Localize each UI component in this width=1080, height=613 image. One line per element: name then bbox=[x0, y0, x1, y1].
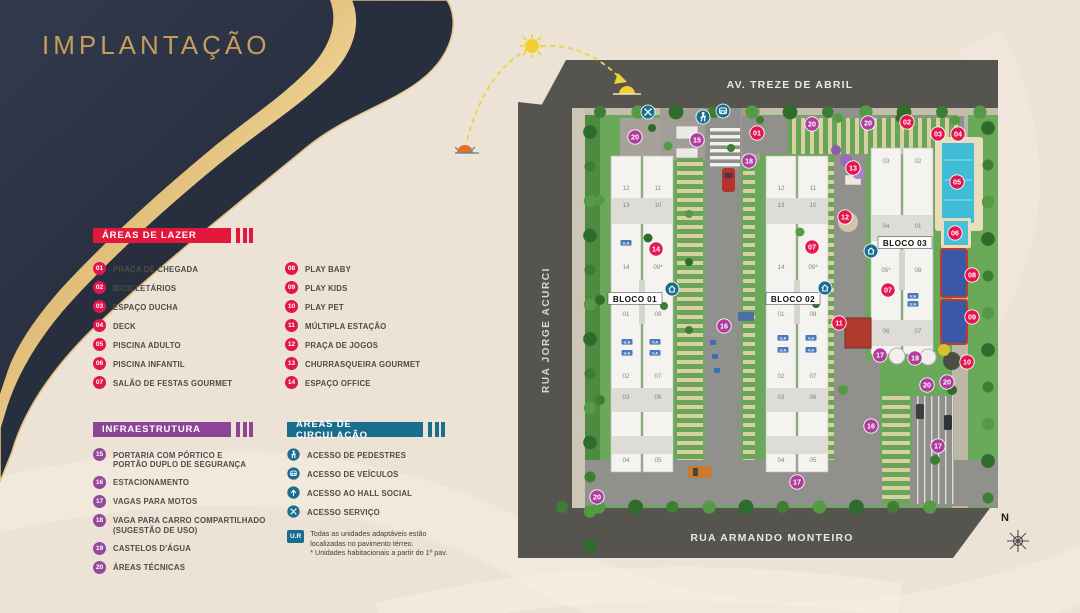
legend-infra-items: 15PORTARIA COM PÓRTICO E PORTÃO DUPLO DE… bbox=[93, 448, 283, 580]
legend-item-01: 01PRAÇA DE CHEGADA bbox=[93, 262, 278, 275]
svg-text:18: 18 bbox=[745, 157, 753, 166]
map-badge-17: 17 bbox=[873, 348, 887, 362]
unit-number: 06 bbox=[883, 328, 890, 335]
legend-item-07: 07SALÃO DE FESTAS GOURMET bbox=[93, 376, 278, 389]
unit-number: 05 bbox=[810, 457, 817, 464]
unit-tag: U.A bbox=[622, 339, 633, 345]
svg-text:08: 08 bbox=[968, 271, 976, 280]
circ-header-stripes bbox=[426, 422, 446, 437]
legend-item-label: DECK bbox=[113, 319, 136, 331]
legend-number-badge: 11 bbox=[285, 319, 298, 332]
street-label-bottom: RUA ARMANDO MONTEIRO bbox=[690, 532, 853, 544]
play-baby-court bbox=[941, 249, 967, 297]
unit-number: 10 bbox=[655, 202, 662, 209]
svg-text:09: 09 bbox=[968, 313, 976, 322]
legend-item-label: ACESSO DE VEÍCULOS bbox=[307, 467, 399, 479]
legend-item-18: 18VAGA PARA CARRO COMPARTILHADO (SUGESTÃ… bbox=[93, 514, 283, 536]
unit-number: 14 bbox=[623, 264, 630, 271]
svg-text:BLOCO 03: BLOCO 03 bbox=[883, 239, 927, 248]
legend-item-label: SALÃO DE FESTAS GOURMET bbox=[113, 376, 232, 388]
map-badge-14: 14 bbox=[649, 242, 663, 256]
infra-header-stripes bbox=[234, 422, 254, 437]
map-badge-20: 20 bbox=[940, 375, 954, 389]
legend-item-label: CHURRASQUEIRA GOURMET bbox=[305, 357, 420, 369]
map-badge-20: 20 bbox=[628, 130, 642, 144]
legend-circ-items: ACESSO DE PEDESTRESACESSO DE VEÍCULOSACE… bbox=[287, 448, 472, 524]
svg-text:17: 17 bbox=[934, 442, 942, 451]
svg-text:07: 07 bbox=[808, 243, 816, 252]
svg-text:01: 01 bbox=[753, 129, 761, 138]
unit-tag: V.A bbox=[650, 339, 661, 345]
unit-number: 11 bbox=[655, 185, 662, 192]
unit-tag: V.A bbox=[908, 293, 919, 299]
unit-number: 07 bbox=[915, 328, 922, 335]
legend-item-label: PLAY KIDS bbox=[305, 281, 348, 293]
map-badge-11: 11 bbox=[832, 316, 846, 330]
map-badge-07: 07 bbox=[805, 240, 819, 254]
legend-item-label: MÚLTIPLA ESTAÇÃO bbox=[305, 319, 386, 331]
svg-text:20: 20 bbox=[923, 381, 931, 390]
legend-item-20: 20ÁREAS TÉCNICAS bbox=[93, 561, 283, 574]
legend-item-label: PORTARIA COM PÓRTICO E PORTÃO DUPLO DE S… bbox=[113, 448, 246, 470]
unit-number: 04 bbox=[778, 457, 785, 464]
svg-text:13: 13 bbox=[849, 164, 857, 173]
map-badge-20: 20 bbox=[590, 490, 604, 504]
parking-strip-2 bbox=[882, 392, 910, 504]
svg-text:BLOCO 01: BLOCO 01 bbox=[613, 295, 657, 304]
legend-item-circ: ACESSO DE VEÍCULOS bbox=[287, 467, 472, 480]
unit-number: 08 bbox=[810, 311, 817, 318]
legend-number-badge: 15 bbox=[93, 448, 106, 461]
unit-number: 03 bbox=[883, 158, 890, 165]
lazer-header: ÁREAS DE LAZER bbox=[93, 228, 253, 243]
unit-number: 01 bbox=[778, 311, 785, 318]
map-badge-06: 06 bbox=[948, 226, 962, 240]
unit-number: 07 bbox=[810, 373, 817, 380]
note-line1: Todas as unidades adaptáveis estão bbox=[310, 529, 426, 538]
legend-item-label: BICICLETÁRIOS bbox=[113, 281, 176, 293]
svg-text:17: 17 bbox=[793, 478, 801, 487]
vehicle-icon bbox=[716, 104, 730, 118]
svg-text:03: 03 bbox=[934, 130, 942, 139]
svg-text:20: 20 bbox=[631, 133, 639, 142]
unit-number: 07 bbox=[655, 373, 662, 380]
svg-text:U.A: U.A bbox=[624, 350, 631, 355]
legend-item-label: ESPAÇO OFFICE bbox=[305, 376, 371, 388]
implantation-brochure: IMPLANTAÇÃO ÁREAS DE LAZER 01PRAÇA DE CH… bbox=[0, 0, 1080, 613]
unit-tag: U.A bbox=[778, 347, 789, 353]
legend-number-badge: 14 bbox=[285, 376, 298, 389]
parking-strip-1 bbox=[677, 158, 703, 460]
legend-item-label: PRAÇA DE CHEGADA bbox=[113, 262, 198, 274]
svg-text:U.A: U.A bbox=[623, 240, 630, 245]
unit-number: 02 bbox=[915, 158, 922, 165]
legend-number-badge: 16 bbox=[93, 476, 106, 489]
unit-number: 14 bbox=[778, 264, 785, 271]
legend-circ-header: ÁREAS DE CIRCULAÇÃO bbox=[287, 422, 445, 437]
infra-header-label: INFRAESTRUTURA bbox=[93, 422, 231, 437]
map-badge-04: 04 bbox=[951, 127, 965, 141]
legend-number-badge: 13 bbox=[285, 357, 298, 370]
legend-lazer-col1: 01PRAÇA DE CHEGADA02BICICLETÁRIOS03ESPAÇ… bbox=[93, 262, 278, 395]
service-icon bbox=[641, 105, 655, 119]
legend-number-badge: 08 bbox=[285, 262, 298, 275]
play-kids-court bbox=[941, 300, 967, 344]
map-badge-17: 17 bbox=[931, 439, 945, 453]
circ-header: ÁREAS DE CIRCULAÇÃO bbox=[287, 422, 445, 437]
legend-number-badge: 07 bbox=[93, 376, 106, 389]
bloco-label: BLOCO 02 bbox=[766, 293, 820, 305]
svg-text:05: 05 bbox=[953, 178, 961, 187]
map-badge-13: 13 bbox=[846, 161, 860, 175]
legend-item-19: 19CASTELOS D'ÁGUA bbox=[93, 542, 283, 555]
legend-item-label: VAGA PARA CARRO COMPARTILHADO (SUGESTÃO … bbox=[113, 514, 266, 536]
legend-item-04: 04DECK bbox=[93, 319, 278, 332]
svg-text:20: 20 bbox=[593, 493, 601, 502]
legend-item-label: CASTELOS D'ÁGUA bbox=[113, 542, 191, 554]
legend-number-badge: 19 bbox=[93, 542, 106, 555]
svg-text:U.A: U.A bbox=[910, 301, 917, 306]
map-badge-08: 08 bbox=[965, 268, 979, 282]
unit-number: 13 bbox=[623, 202, 630, 209]
ur-badge: U.R bbox=[287, 530, 304, 543]
legend-item-11: 11MÚLTIPLA ESTAÇÃO bbox=[285, 319, 470, 332]
service-icon bbox=[287, 505, 300, 518]
svg-text:V.A: V.A bbox=[808, 335, 814, 340]
svg-text:V.A: V.A bbox=[910, 293, 916, 298]
legend-item-label: ESPAÇO DUCHA bbox=[113, 300, 178, 312]
pedestrian-icon bbox=[287, 448, 300, 461]
legend-number-badge: 20 bbox=[93, 561, 106, 574]
legend-item-05: 05PISCINA ADULTO bbox=[93, 338, 278, 351]
legend-item-08: 08PLAY BABY bbox=[285, 262, 470, 275]
svg-text:U.A: U.A bbox=[780, 335, 787, 340]
legend-item-label: ACESSO SERVIÇO bbox=[307, 505, 380, 517]
unit-number: 02 bbox=[623, 373, 630, 380]
unit-number: 10 bbox=[810, 202, 817, 209]
legend-item-label: ACESSO DE PEDESTRES bbox=[307, 448, 406, 460]
svg-text:V.A: V.A bbox=[652, 350, 658, 355]
legend-number-badge: 02 bbox=[93, 281, 106, 294]
map-badge-16: 16 bbox=[717, 319, 731, 333]
hall-icon bbox=[864, 244, 878, 258]
svg-text:16: 16 bbox=[720, 322, 728, 331]
map-badge-20: 20 bbox=[805, 117, 819, 131]
unit-number: 13 bbox=[778, 202, 785, 209]
bloco-label: BLOCO 01 bbox=[608, 293, 662, 305]
legend-item-label: ESTACIONAMENTO bbox=[113, 476, 189, 488]
legend-number-badge: 18 bbox=[93, 514, 106, 527]
svg-text:U.A: U.A bbox=[624, 339, 631, 344]
unit-number: 05 bbox=[655, 457, 662, 464]
svg-text:20: 20 bbox=[864, 119, 872, 128]
legend-number-badge: 10 bbox=[285, 300, 298, 313]
svg-text:20: 20 bbox=[808, 120, 816, 129]
legend-item-label: PRAÇA DE JOGOS bbox=[305, 338, 378, 350]
unit-tag: U.A bbox=[778, 335, 789, 341]
street-label-top: AV. TREZE DE ABRIL bbox=[727, 79, 854, 91]
legend-item-02: 02BICICLETÁRIOS bbox=[93, 281, 278, 294]
unit-tag: U.A bbox=[908, 301, 919, 307]
unit-number: 01 bbox=[623, 311, 630, 318]
compass-n-label: N bbox=[1001, 512, 1009, 524]
legend-number-badge: 06 bbox=[93, 357, 106, 370]
legend-item-label: ACESSO AO HALL SOCIAL bbox=[307, 486, 412, 498]
unit-number: 09* bbox=[653, 264, 663, 271]
legend-item-circ: ACESSO DE PEDESTRES bbox=[287, 448, 472, 461]
map-badge-16: 16 bbox=[864, 419, 878, 433]
unit-number: 04 bbox=[883, 223, 890, 230]
hall-icon bbox=[665, 282, 679, 296]
svg-text:19: 19 bbox=[911, 354, 919, 363]
legend-lazer-col2: 08PLAY BABY09PLAY KIDS10PLAY PET11MÚLTIP… bbox=[285, 262, 470, 395]
legend-number-badge: 05 bbox=[93, 338, 106, 351]
map-badge-18: 18 bbox=[742, 154, 756, 168]
map-badge-20: 20 bbox=[920, 378, 934, 392]
svg-text:20: 20 bbox=[943, 378, 951, 387]
unit-tag: V.A bbox=[806, 347, 817, 353]
sun-icon bbox=[520, 34, 544, 58]
svg-text:17: 17 bbox=[876, 351, 884, 360]
page-title: IMPLANTAÇÃO bbox=[42, 30, 270, 61]
map-badge-03: 03 bbox=[931, 127, 945, 141]
internal-road-a bbox=[705, 108, 741, 468]
unit-tag: U.A bbox=[622, 350, 633, 356]
note-line2: localizadas no pavimento térreo. bbox=[310, 539, 413, 548]
svg-text:02: 02 bbox=[903, 118, 911, 127]
legend-item-circ: ACESSO SERVIÇO bbox=[287, 505, 472, 518]
unit-number: 03 bbox=[623, 394, 630, 401]
lazer-header-stripes bbox=[234, 228, 254, 243]
map-badge-01: 01 bbox=[750, 126, 764, 140]
legend-number-badge: 01 bbox=[93, 262, 106, 275]
map-badge-17: 17 bbox=[790, 475, 804, 489]
bloco-label: BLOCO 03 bbox=[878, 237, 932, 249]
legend-item-03: 03ESPAÇO DUCHA bbox=[93, 300, 278, 313]
lazer-header-label: ÁREAS DE LAZER bbox=[93, 228, 231, 243]
hall-icon bbox=[287, 486, 300, 499]
svg-text:04: 04 bbox=[954, 130, 962, 139]
legend-item-circ: ACESSO AO HALL SOCIAL bbox=[287, 486, 472, 499]
legend-number-badge: 12 bbox=[285, 338, 298, 351]
unit-number: 05* bbox=[881, 267, 891, 274]
legend-item-16: 16ESTACIONAMENTO bbox=[93, 476, 283, 489]
unit-number: 03 bbox=[778, 394, 785, 401]
legend-item-15: 15PORTARIA COM PÓRTICO E PORTÃO DUPLO DE… bbox=[93, 448, 283, 470]
svg-text:10: 10 bbox=[963, 358, 971, 367]
pedestrian-icon bbox=[696, 110, 710, 124]
map-badge-19: 19 bbox=[908, 351, 922, 365]
sunset-icon bbox=[455, 145, 479, 153]
svg-text:06: 06 bbox=[951, 229, 959, 238]
map-badge-20: 20 bbox=[861, 116, 875, 130]
legend-number-badge: 09 bbox=[285, 281, 298, 294]
map-badge-10: 10 bbox=[960, 355, 974, 369]
legend-number-badge: 04 bbox=[93, 319, 106, 332]
unit-number: 08 bbox=[655, 311, 662, 318]
unit-number: 12 bbox=[778, 185, 785, 192]
street-label-left: RUA JORGE ACURCI bbox=[541, 267, 552, 393]
map-badge-15: 15 bbox=[690, 133, 704, 147]
unit-number: 06 bbox=[655, 394, 662, 401]
legend-item-14: 14ESPAÇO OFFICE bbox=[285, 376, 470, 389]
legend-item-13: 13CHURRASQUEIRA GOURMET bbox=[285, 357, 470, 370]
legend-infra-header: INFRAESTRUTURA bbox=[93, 422, 253, 437]
legend-item-label: PISCINA ADULTO bbox=[113, 338, 181, 350]
legend-item-06: 06PISCINA INFANTIL bbox=[93, 357, 278, 370]
legend-item-12: 12PRAÇA DE JOGOS bbox=[285, 338, 470, 351]
svg-text:11: 11 bbox=[835, 319, 843, 328]
map-badge-05: 05 bbox=[950, 175, 964, 189]
legend-item-label: PLAY BABY bbox=[305, 262, 351, 274]
unit-number: 09* bbox=[808, 264, 818, 271]
svg-text:07: 07 bbox=[884, 286, 892, 295]
svg-text:12: 12 bbox=[841, 213, 849, 222]
map-badge-02: 02 bbox=[900, 115, 914, 129]
legend-item-label: PLAY PET bbox=[305, 300, 344, 312]
unit-number: 08 bbox=[915, 267, 922, 274]
legend-item-label: PISCINA INFANTIL bbox=[113, 357, 185, 369]
svg-text:U.A: U.A bbox=[780, 347, 787, 352]
unit-number: 04 bbox=[623, 457, 630, 464]
circ-header-label: ÁREAS DE CIRCULAÇÃO bbox=[287, 422, 423, 437]
svg-text:15: 15 bbox=[693, 136, 701, 145]
svg-text:V.A: V.A bbox=[808, 347, 814, 352]
legend-item-17: 17VAGAS PARA MOTOS bbox=[93, 495, 283, 508]
legend-item-09: 09PLAY KIDS bbox=[285, 281, 470, 294]
infra-header: INFRAESTRUTURA bbox=[93, 422, 253, 437]
legend-number-badge: 03 bbox=[93, 300, 106, 313]
unit-number: 02 bbox=[778, 373, 785, 380]
note-line3: * Unidades habitacionais a partir do 1º … bbox=[310, 548, 447, 557]
map-badge-09: 09 bbox=[965, 310, 979, 324]
unit-tag: V.A bbox=[650, 350, 661, 356]
unit-number: 01 bbox=[915, 223, 922, 230]
svg-text:14: 14 bbox=[652, 245, 660, 254]
hall-icon bbox=[818, 281, 832, 295]
legend-number-badge: 17 bbox=[93, 495, 106, 508]
legend-item-label: ÁREAS TÉCNICAS bbox=[113, 561, 185, 573]
unit-number: 12 bbox=[623, 185, 630, 192]
legend-item-10: 10PLAY PET bbox=[285, 300, 470, 313]
vehicle-icon bbox=[287, 467, 300, 480]
site-plan-map: AV. TREZE DE ABRIL RUA JORGE ACURCI RUA … bbox=[455, 0, 1080, 613]
map-badge-12: 12 bbox=[838, 210, 852, 224]
svg-text:V.A: V.A bbox=[652, 339, 658, 344]
map-badge-07: 07 bbox=[881, 283, 895, 297]
svg-text:BLOCO 02: BLOCO 02 bbox=[771, 295, 815, 304]
unit-tag: U.A bbox=[621, 240, 632, 246]
unit-number: 11 bbox=[810, 185, 817, 192]
legend-item-label: VAGAS PARA MOTOS bbox=[113, 495, 197, 507]
compass-rose: N bbox=[1001, 512, 1029, 552]
multipla-estacao bbox=[845, 318, 871, 348]
unit-number: 06 bbox=[810, 394, 817, 401]
unit-tag: V.A bbox=[806, 335, 817, 341]
legend-lazer-header: ÁREAS DE LAZER bbox=[93, 228, 253, 243]
svg-text:16: 16 bbox=[867, 422, 875, 431]
